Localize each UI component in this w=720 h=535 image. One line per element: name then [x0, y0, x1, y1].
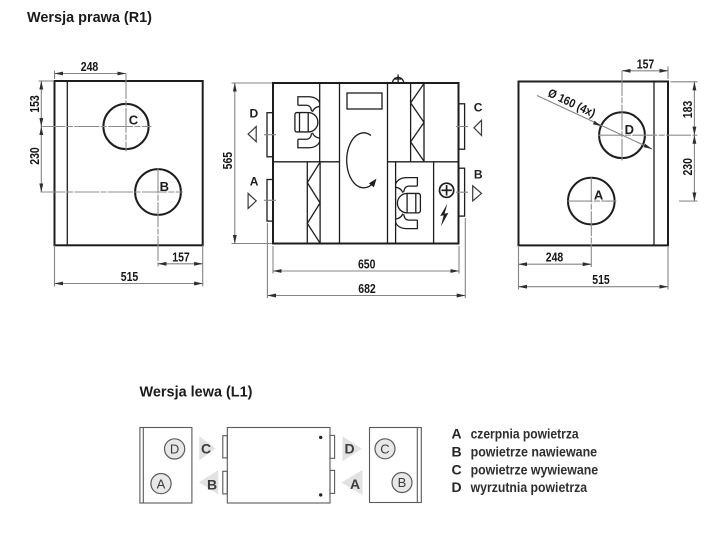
svg-text:183: 183: [680, 101, 695, 119]
svg-text:B: B: [474, 167, 483, 181]
svg-text:B: B: [207, 477, 217, 493]
svg-text:B: B: [398, 475, 407, 490]
svg-text:powietrze nawiewane: powietrze nawiewane: [471, 445, 598, 460]
svg-text:C: C: [380, 442, 389, 457]
svg-text:czerpnia powietrza: czerpnia powietrza: [471, 427, 579, 442]
svg-text:A: A: [594, 187, 604, 202]
svg-text:650: 650: [358, 257, 376, 272]
svg-text:A: A: [452, 426, 462, 442]
svg-text:157: 157: [637, 56, 655, 71]
svg-text:B: B: [452, 444, 462, 460]
svg-text:wyrzutnia powietrza: wyrzutnia powietrza: [470, 480, 588, 495]
svg-text:C: C: [129, 113, 139, 128]
svg-text:D: D: [344, 441, 354, 457]
svg-text:powietrze wywiewane: powietrze wywiewane: [471, 463, 599, 478]
svg-text:157: 157: [172, 249, 190, 264]
svg-text:C: C: [201, 441, 211, 457]
svg-text:Wersja lewa (L1): Wersja lewa (L1): [140, 384, 253, 401]
svg-text:682: 682: [358, 281, 376, 296]
svg-text:C: C: [474, 100, 483, 114]
svg-text:D: D: [452, 479, 462, 495]
svg-text:153: 153: [27, 95, 42, 113]
svg-text:A: A: [350, 476, 360, 492]
svg-text:D: D: [250, 107, 259, 121]
svg-text:D: D: [625, 122, 634, 137]
svg-text:248: 248: [81, 59, 99, 74]
svg-text:A: A: [157, 476, 166, 491]
svg-text:515: 515: [121, 269, 139, 284]
svg-text:248: 248: [546, 250, 564, 265]
svg-text:230: 230: [27, 147, 42, 165]
svg-text:A: A: [250, 175, 259, 189]
svg-text:565: 565: [220, 152, 235, 170]
svg-text:B: B: [160, 179, 169, 194]
svg-text:Wersja prawa (R1): Wersja prawa (R1): [27, 9, 152, 26]
svg-text:C: C: [452, 462, 462, 478]
svg-text:230: 230: [680, 158, 695, 176]
svg-text:D: D: [170, 442, 179, 457]
svg-text:515: 515: [592, 272, 610, 287]
